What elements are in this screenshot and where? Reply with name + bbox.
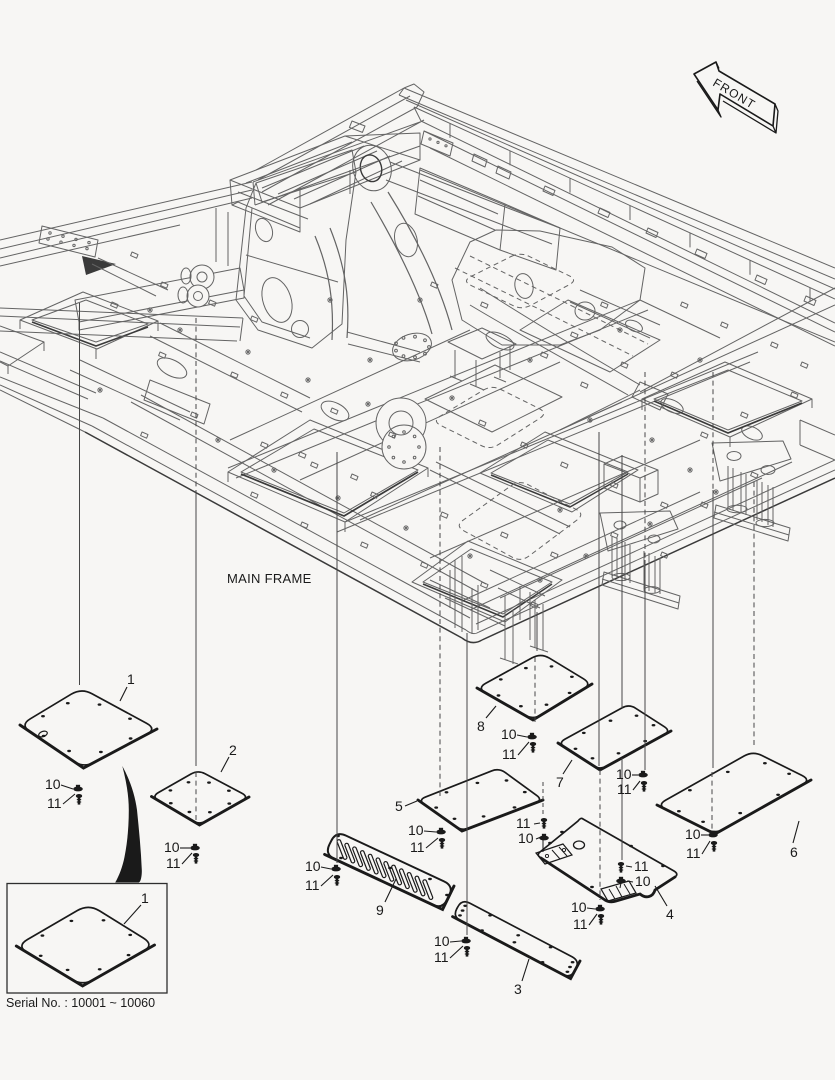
svg-text:11: 11	[410, 839, 425, 855]
svg-text:11: 11	[305, 877, 320, 893]
svg-text:MAIN FRAME: MAIN FRAME	[227, 571, 312, 586]
svg-text:9: 9	[376, 902, 384, 918]
svg-text:11: 11	[434, 949, 449, 965]
svg-text:11: 11	[617, 781, 632, 797]
svg-text:11: 11	[47, 795, 62, 811]
svg-text:2: 2	[229, 742, 237, 758]
svg-text:10: 10	[408, 822, 424, 838]
svg-text:11: 11	[686, 845, 701, 861]
svg-text:10: 10	[685, 826, 701, 842]
svg-text:10: 10	[305, 858, 321, 874]
svg-text:11: 11	[502, 746, 517, 762]
svg-text:10: 10	[434, 933, 450, 949]
svg-text:10: 10	[635, 873, 651, 889]
svg-text:10: 10	[45, 776, 61, 792]
svg-text:10: 10	[501, 726, 517, 742]
svg-text:4: 4	[666, 906, 674, 922]
svg-text:3: 3	[514, 981, 522, 997]
svg-text:10: 10	[164, 839, 180, 855]
svg-text:11: 11	[516, 815, 531, 831]
svg-text:11: 11	[573, 916, 588, 932]
svg-text:Serial No. : 10001 ~ 10060: Serial No. : 10001 ~ 10060	[6, 996, 155, 1010]
svg-text:10: 10	[571, 899, 587, 915]
svg-text:10: 10	[518, 830, 534, 846]
svg-text:11: 11	[634, 858, 649, 874]
svg-text:11: 11	[166, 855, 181, 871]
svg-text:7: 7	[556, 774, 564, 790]
svg-text:1: 1	[141, 890, 149, 906]
svg-text:8: 8	[477, 718, 485, 734]
svg-text:6: 6	[790, 844, 798, 860]
svg-text:10: 10	[616, 766, 632, 782]
svg-text:1: 1	[127, 671, 135, 687]
svg-text:5: 5	[395, 798, 403, 814]
